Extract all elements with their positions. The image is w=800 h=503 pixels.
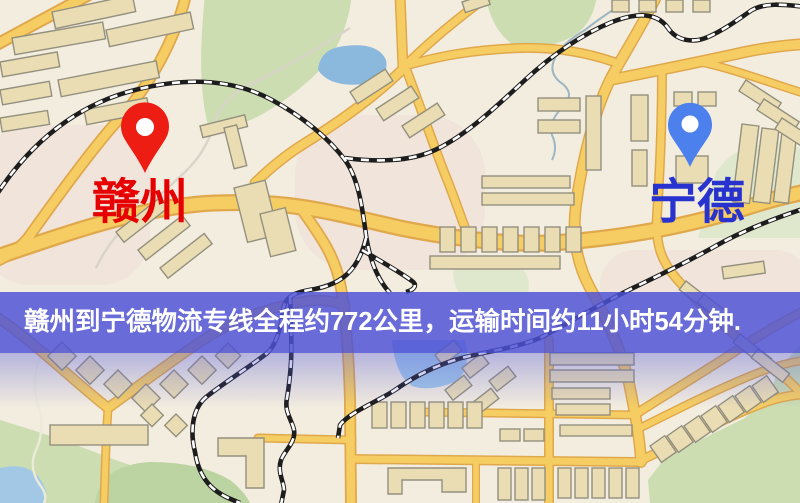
route-banner-text: 赣州到宁德物流专线全程约772公里，运输时间约11小时54分钟. — [24, 307, 741, 336]
banner-shadow — [0, 353, 800, 408]
map-illustration: 赣州到宁德物流专线全程约772公里，运输时间约11小时54分钟. 赣州 宁德 — [0, 0, 800, 503]
destination-label: 宁德 — [649, 176, 745, 229]
origin-label: 赣州 — [92, 176, 188, 229]
map[interactable]: 赣州到宁德物流专线全程约772公里，运输时间约11小时54分钟. 赣州 宁德 — [0, 0, 800, 503]
